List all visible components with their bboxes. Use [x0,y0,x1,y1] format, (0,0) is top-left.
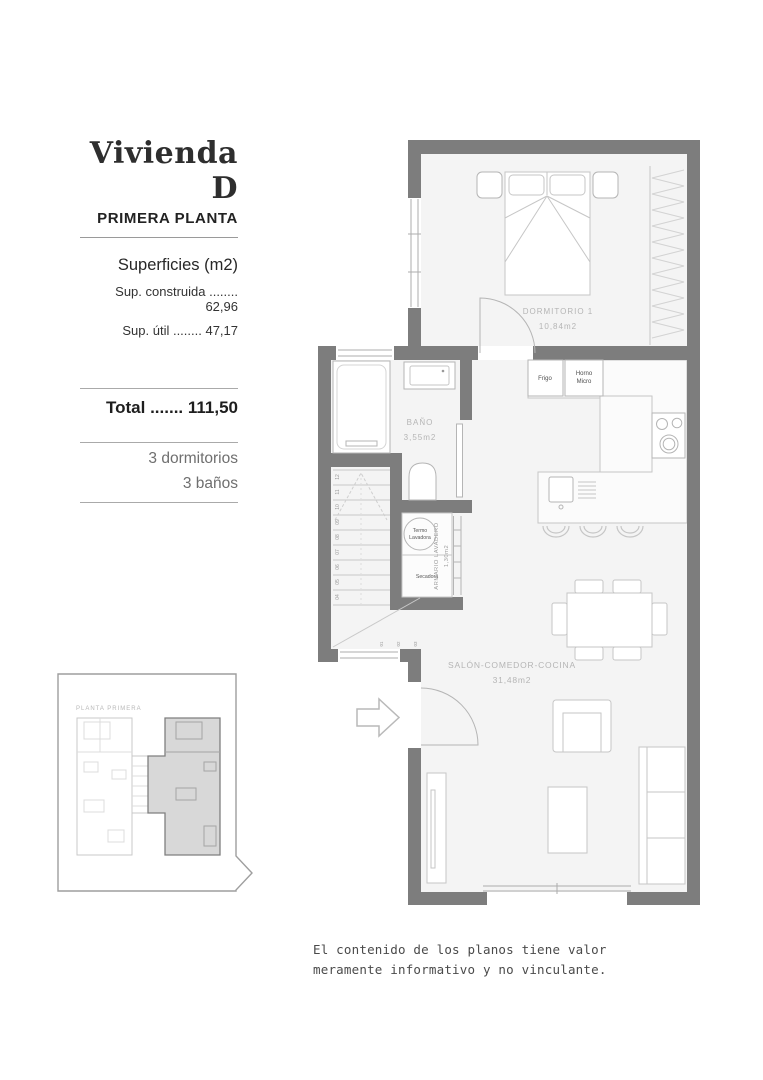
disclaimer-line-2: meramente informativo y no vinculante. [313,960,613,980]
svg-text:05: 05 [335,579,341,585]
oven-micro [565,360,603,396]
floor-plan: 12 11 10 09 08 07 06 05 04 01 02 03 [0,0,763,1080]
entry-arrow-icon [357,699,399,736]
living-area: 31,48m2 [493,675,532,685]
svg-text:11: 11 [335,489,341,494]
closet-area: 1,30m2 [444,545,450,567]
washer-label-2: Lavadora [409,535,431,541]
bath-label: BAÑO [407,418,434,427]
oven-label-1: Horno [576,371,593,377]
hob [652,413,685,458]
laundry-closet: Termo Lavadora Secadora ARMARIO LAVADERO… [402,513,461,597]
svg-text:08: 08 [335,534,341,540]
inset-key-plan: PLANTA PRIMERA [58,674,252,891]
disclaimer: El contenido de los planos tiene valor m… [313,940,613,981]
svg-text:12: 12 [335,474,341,480]
disclaimer-line-1: El contenido de los planos tiene valor [313,940,613,960]
living-label: SALÓN-COMEDOR-COCINA [448,660,576,670]
svg-text:06: 06 [335,564,341,570]
closet-label: ARMARIO LAVADERO [434,522,440,589]
svg-text:10: 10 [335,504,341,510]
washer-label-1: Termo [413,528,428,534]
nightstand [477,172,502,198]
bath-area: 3,55m2 [404,433,437,442]
sofa [639,747,685,884]
svg-text:02: 02 [396,641,401,647]
coffee-table [548,787,587,853]
svg-text:01: 01 [379,641,384,647]
oven-label-2: Micro [577,379,592,385]
fridge-label: Frigo [538,376,552,382]
svg-text:09: 09 [335,519,341,525]
bedroom-area: 10,84m2 [539,322,577,331]
svg-text:04: 04 [335,594,341,600]
nightstand [593,172,618,198]
bedroom-label: DORMITORIO 1 [523,307,594,316]
bath-door [457,424,463,497]
toilet [409,463,436,500]
armchair [553,700,611,752]
svg-text:03: 03 [413,641,418,647]
svg-text:07: 07 [335,549,341,555]
shower [333,361,390,453]
plan-sheet: Vivienda D PRIMERA PLANTA Superficies (m… [0,0,763,1080]
tv-unit [427,773,446,883]
inset-label: PLANTA PRIMERA [76,706,142,712]
